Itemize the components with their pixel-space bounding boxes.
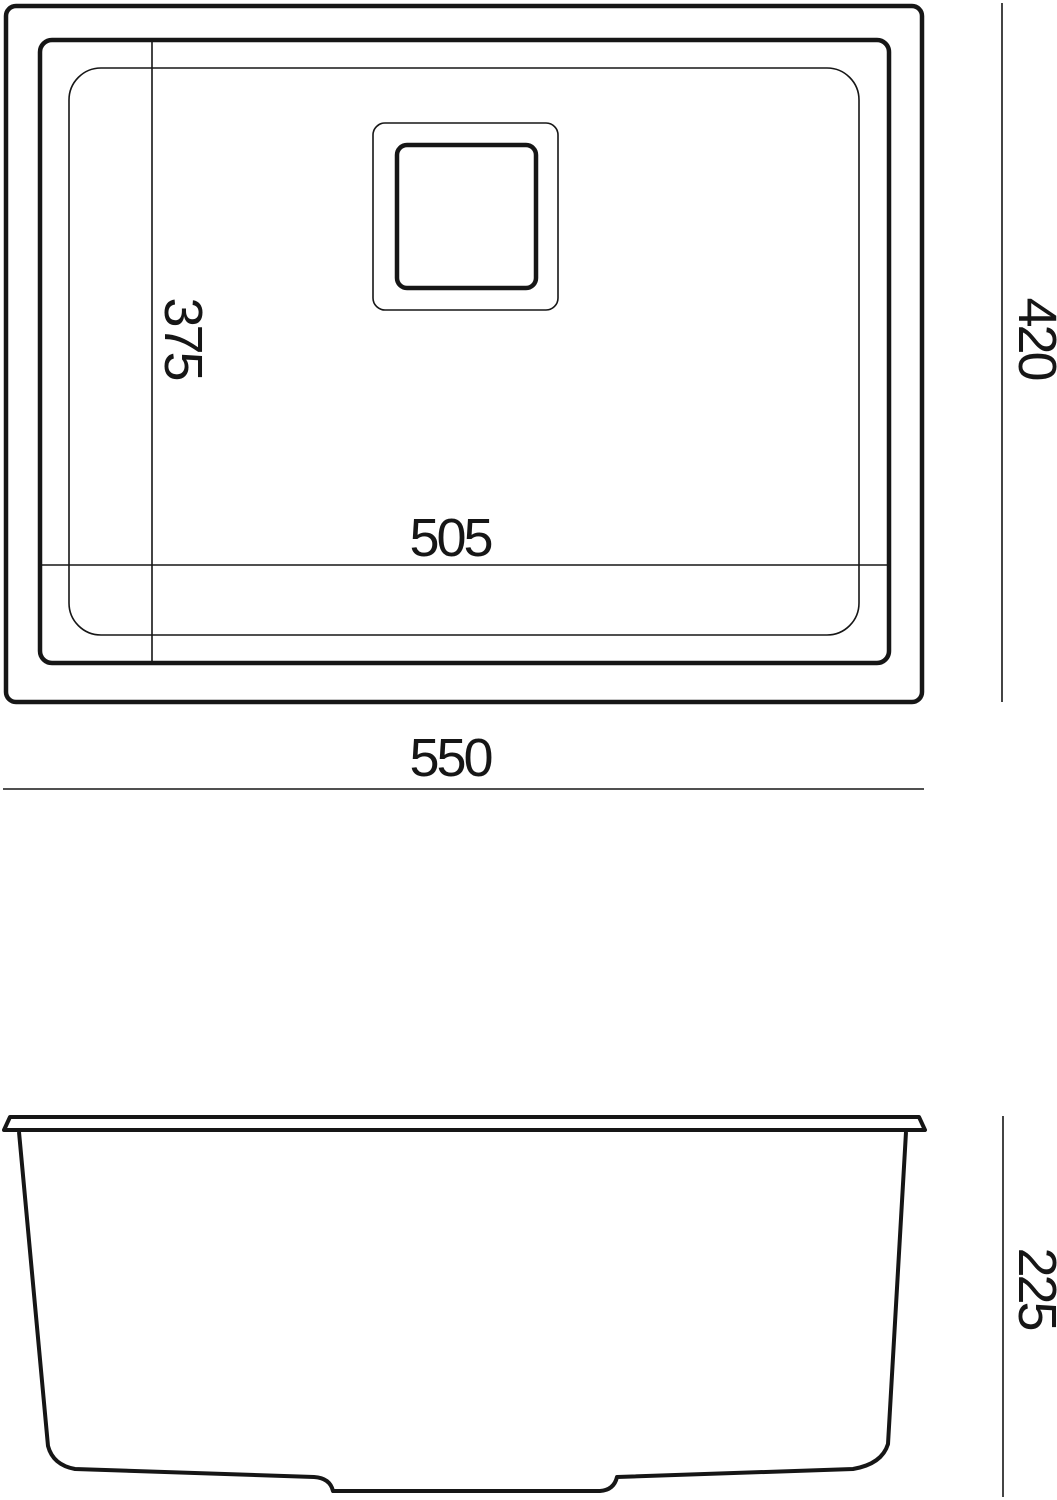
sink-dimension-drawing: 505 375 420 550 225 xyxy=(0,0,1057,1500)
overall-depth-dimension: 420 xyxy=(1002,3,1057,702)
dim-label-overall-depth: 420 xyxy=(1007,297,1057,379)
dim-label-bowl-height: 225 xyxy=(1007,1247,1057,1329)
top-view-outer-edge xyxy=(6,6,922,702)
side-view-rim xyxy=(4,1117,925,1130)
drain-flange-outline xyxy=(373,123,558,310)
overall-width-dimension: 550 xyxy=(3,728,924,789)
top-view: 505 375 xyxy=(6,6,922,702)
side-view: 225 xyxy=(4,1116,1057,1497)
dim-label-inner-depth: 375 xyxy=(153,297,213,379)
drawing-sheet: 505 375 420 550 225 xyxy=(0,0,1057,1500)
drain-hole-outline xyxy=(397,145,536,288)
dim-label-inner-width: 505 xyxy=(409,508,491,568)
dim-label-overall-width: 550 xyxy=(409,728,491,788)
side-view-bowl-profile xyxy=(19,1132,906,1491)
